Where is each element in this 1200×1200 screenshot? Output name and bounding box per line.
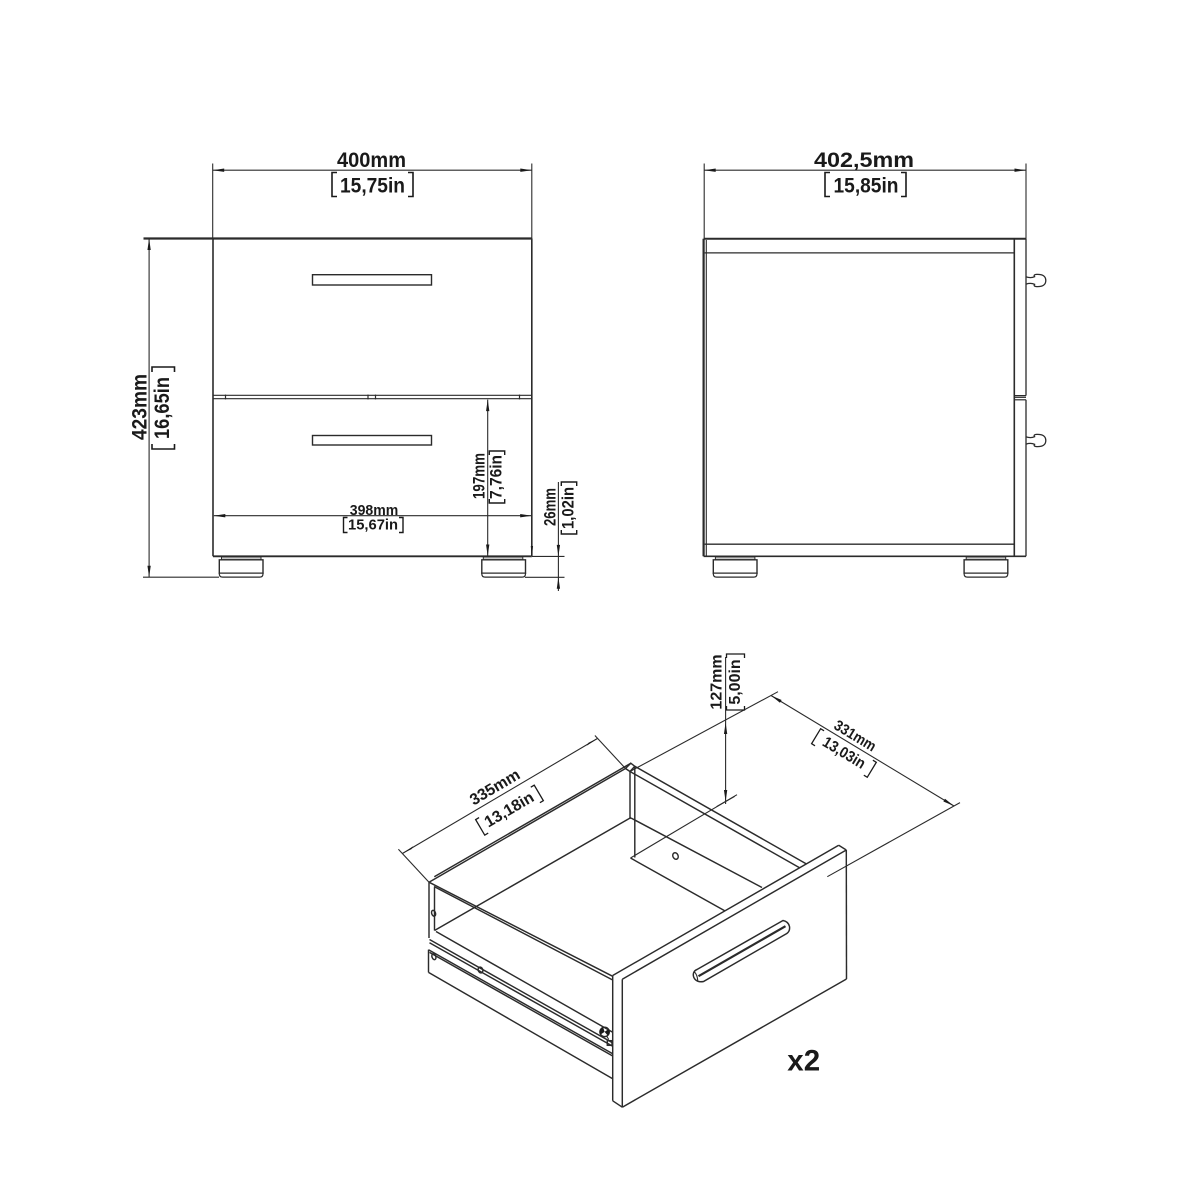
svg-text:x2: x2 <box>787 1045 820 1078</box>
svg-text:5,00in: 5,00in <box>727 659 744 704</box>
svg-text:127mm: 127mm <box>709 654 726 709</box>
svg-text:400mm: 400mm <box>337 148 406 172</box>
svg-text:423mm: 423mm <box>127 374 151 440</box>
svg-text:15,75in: 15,75in <box>340 174 405 198</box>
svg-text:402,5mm: 402,5mm <box>814 148 914 172</box>
svg-text:197mm: 197mm <box>469 453 488 499</box>
svg-text:16,65in: 16,65in <box>150 377 174 439</box>
svg-text:1,02in: 1,02in <box>559 487 578 529</box>
svg-text:15,85in: 15,85in <box>834 174 899 198</box>
svg-text:26mm: 26mm <box>541 488 560 526</box>
svg-text:15,67in: 15,67in <box>348 517 398 534</box>
svg-text:7,76in: 7,76in <box>487 455 506 499</box>
